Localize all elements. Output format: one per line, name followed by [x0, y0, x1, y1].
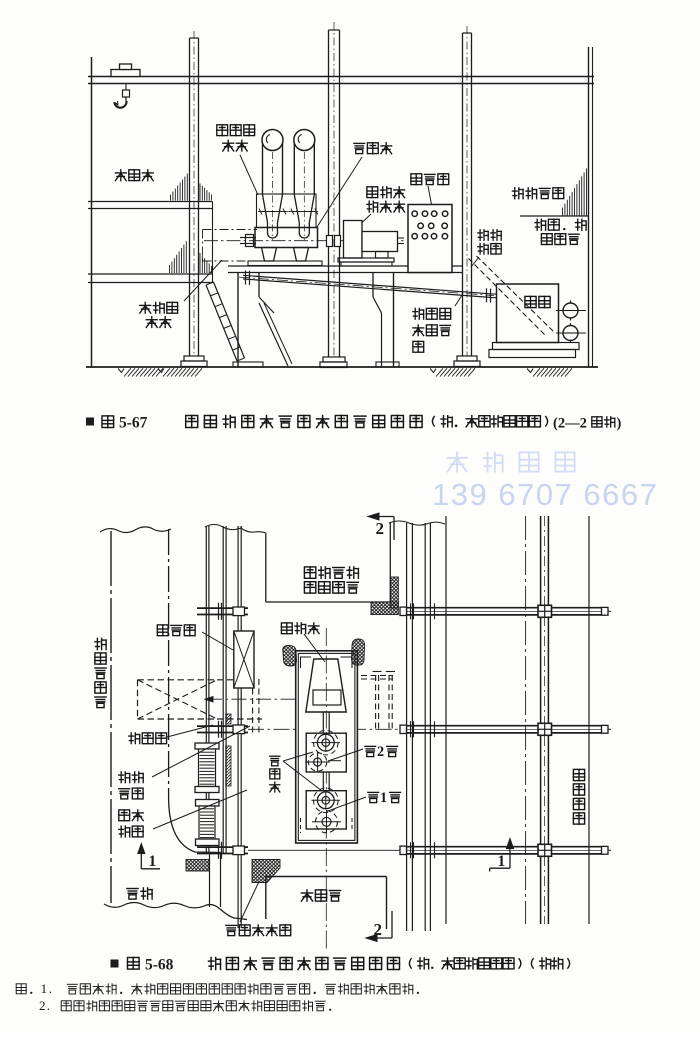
svg-text:5-68: 5-68 [145, 957, 174, 974]
svg-text:2: 2 [39, 998, 46, 1013]
svg-text:2: 2 [374, 920, 383, 939]
svg-text:2: 2 [376, 519, 385, 538]
svg-text:1: 1 [149, 853, 157, 870]
svg-text:5-67: 5-67 [119, 415, 148, 432]
svg-text:.: . [49, 981, 52, 996]
svg-text:2: 2 [377, 744, 384, 760]
svg-text:(2—2: (2—2 [553, 416, 587, 432]
svg-text:1: 1 [380, 790, 387, 806]
svg-text:1: 1 [41, 981, 48, 996]
svg-text:139 6707 6667: 139 6707 6667 [432, 477, 658, 512]
svg-text:.: . [47, 998, 50, 1013]
svg-text:): ) [617, 416, 622, 432]
svg-text:1: 1 [498, 853, 506, 870]
